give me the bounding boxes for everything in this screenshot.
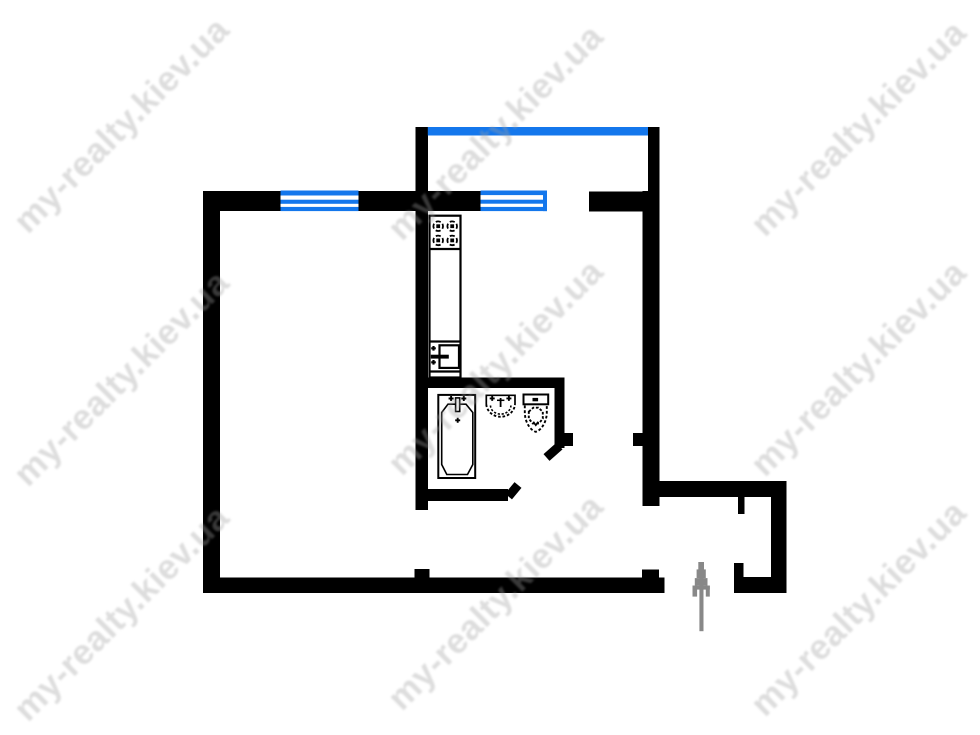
svg-text:my-realty.kiev.ua: my-realty.kiev.ua xyxy=(6,263,237,494)
svg-text:my-realty.kiev.ua: my-realty.kiev.ua xyxy=(380,252,611,483)
svg-text:my-realty.kiev.ua: my-realty.kiev.ua xyxy=(743,13,974,244)
svg-text:my-realty.kiev.ua: my-realty.kiev.ua xyxy=(743,253,974,484)
svg-text:my-realty.kiev.ua: my-realty.kiev.ua xyxy=(6,10,237,241)
svg-text:my-realty.kiev.ua: my-realty.kiev.ua xyxy=(380,487,611,718)
svg-text:my-realty.kiev.ua: my-realty.kiev.ua xyxy=(6,498,237,729)
